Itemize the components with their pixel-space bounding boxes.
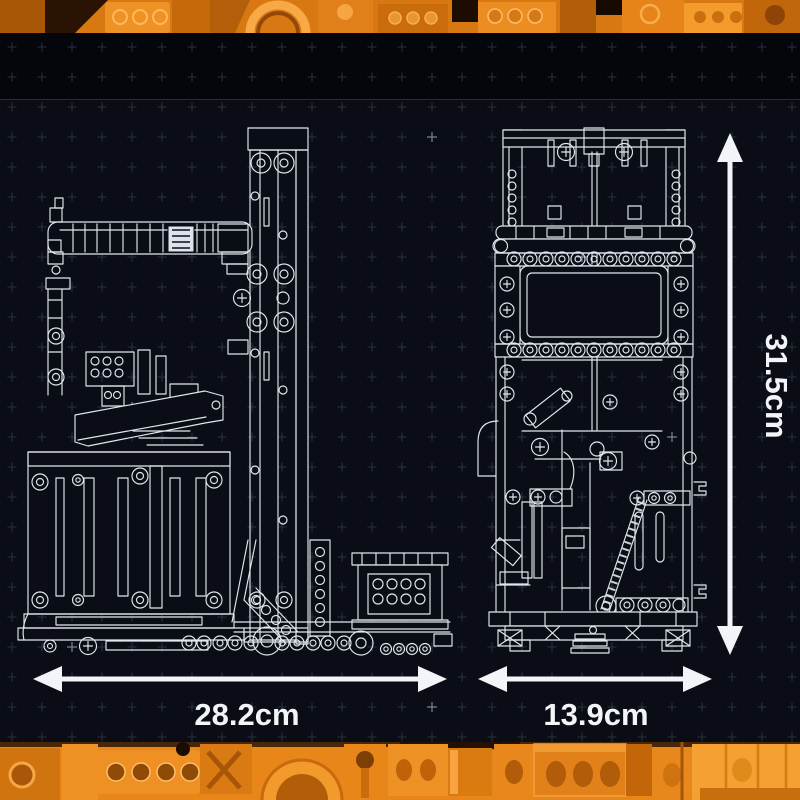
- height-dimension-label: 31.5cm: [759, 333, 794, 438]
- width-dimension-label: 28.2cm: [194, 697, 299, 732]
- product-blueprint-image: 28.2cm 13.9cm 31.5cm: [0, 0, 800, 800]
- lego-bricks-top-banner: [0, 0, 800, 36]
- lego-bricks-bottom-banner: [0, 742, 800, 800]
- depth-dimension-label: 13.9cm: [543, 697, 648, 732]
- blueprint-canvas: 28.2cm 13.9cm 31.5cm: [0, 0, 800, 800]
